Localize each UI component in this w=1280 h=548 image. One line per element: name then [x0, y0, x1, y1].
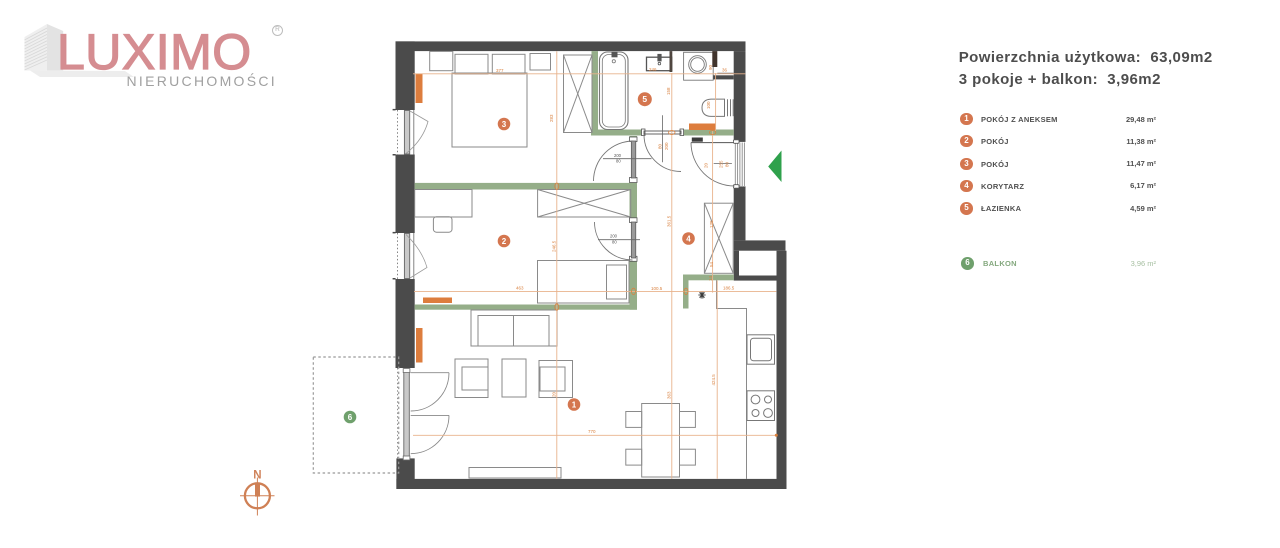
- svg-text:283: 283: [549, 114, 554, 122]
- svg-text:6: 6: [348, 413, 353, 422]
- svg-text:463: 463: [516, 286, 524, 291]
- svg-text:246: 246: [649, 67, 657, 72]
- svg-text:158: 158: [666, 87, 671, 95]
- svg-text:377: 377: [496, 68, 504, 73]
- svg-text:3: 3: [502, 120, 507, 129]
- svg-text:20: 20: [704, 162, 709, 168]
- svg-text:361.5: 361.5: [667, 215, 672, 227]
- svg-text:424.5: 424.5: [711, 374, 716, 386]
- svg-text:80: 80: [612, 240, 617, 245]
- svg-text:770: 770: [588, 429, 596, 434]
- svg-text:80: 80: [725, 161, 730, 167]
- svg-text:20: 20: [552, 391, 557, 397]
- svg-text:200: 200: [664, 142, 669, 150]
- svg-text:4: 4: [686, 234, 691, 243]
- svg-text:80: 80: [616, 159, 621, 164]
- svg-text:2: 2: [502, 237, 507, 246]
- svg-text:200: 200: [610, 234, 618, 239]
- svg-text:80: 80: [658, 143, 663, 149]
- svg-text:200: 200: [614, 153, 622, 158]
- svg-text:90: 90: [708, 64, 713, 70]
- svg-text:363: 363: [667, 391, 672, 399]
- svg-text:1: 1: [572, 400, 577, 409]
- svg-text:100: 100: [706, 101, 711, 109]
- svg-text:100.5: 100.5: [651, 286, 663, 291]
- svg-text:54: 54: [709, 261, 714, 267]
- svg-text:5: 5: [642, 94, 647, 104]
- svg-text:14: 14: [708, 275, 713, 281]
- svg-text:138: 138: [709, 220, 714, 228]
- svg-text:186.5: 186.5: [723, 286, 735, 291]
- svg-text:36: 36: [722, 68, 728, 73]
- svg-text:255: 255: [719, 160, 724, 168]
- svg-text:246.5: 246.5: [552, 240, 557, 252]
